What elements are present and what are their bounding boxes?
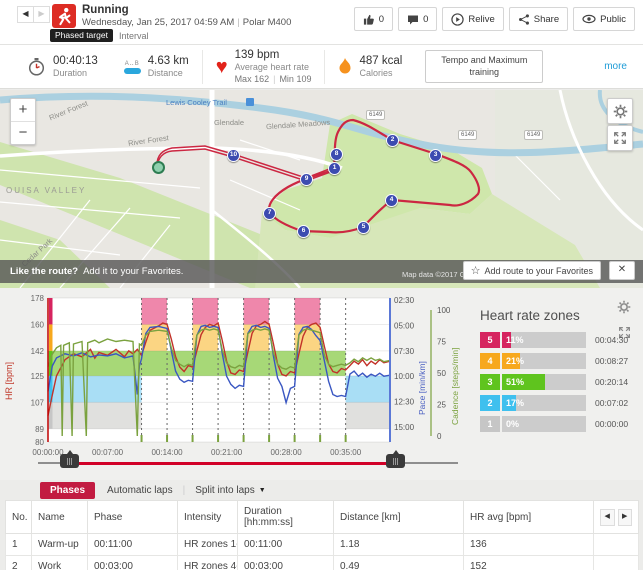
svg-text:00:14:00: 00:14:00: [151, 448, 183, 457]
svg-text:107: 107: [31, 398, 45, 407]
thumbs-up-icon: [363, 13, 375, 26]
map-settings-button[interactable]: [607, 98, 633, 124]
session-header: ◀ ▶ Running Wednesday, Jan 25, 2017 04:5…: [0, 0, 643, 45]
tab-divider: |: [183, 485, 186, 496]
table-cell: Work: [32, 556, 88, 570]
heart-icon: ♥: [216, 57, 228, 77]
map-fullscreen-button[interactable]: [607, 125, 633, 151]
hr-zone-row: 10%00:00:00: [480, 416, 628, 432]
table-header-cell[interactable]: Phase: [88, 501, 178, 534]
table-cell: 00:11:00: [238, 534, 334, 556]
route-phase-marker[interactable]: 3: [429, 149, 442, 162]
split-label: Split into laps: [195, 485, 254, 496]
hr-zone-bar-track: 0%: [502, 416, 586, 432]
table-cell: 00:03:00: [88, 556, 178, 570]
table-cell: 0.49: [334, 556, 464, 570]
banner-text: Add it to your Favorites.: [83, 266, 183, 277]
route-map[interactable]: OUISA VALLEYGlendaleGlendale MeadowsRive…: [0, 90, 643, 288]
sport-title: Running: [82, 4, 129, 16]
table-cell: HR zones 1-3: [178, 534, 238, 556]
table-header-cell[interactable]: Name: [32, 501, 88, 534]
target-chips: Phased target Interval: [50, 29, 148, 42]
route-phase-marker[interactable]: 2: [386, 134, 399, 147]
flame-icon: [338, 57, 352, 76]
hr-zone-bar-track: 17%: [502, 395, 586, 411]
svg-text:0: 0: [437, 432, 442, 441]
hr-zone-percent: 21%: [506, 353, 524, 369]
separator: |: [273, 74, 275, 84]
cadence-tick-labels: 0255075100: [437, 306, 451, 441]
hr-zone-number: 4: [480, 353, 500, 369]
runner-icon: [54, 6, 74, 26]
hr-zone-number: 3: [480, 374, 500, 390]
duration-value: 00:40:13: [53, 54, 98, 68]
laps-tabs: Phases Automatic laps | Split into laps▼: [40, 482, 266, 499]
chart-settings-button[interactable]: [617, 300, 631, 319]
tab-automatic-laps[interactable]: Automatic laps: [107, 485, 173, 496]
route-phase-marker[interactable]: 8: [330, 148, 343, 161]
hr-zone-number: 1: [480, 416, 500, 432]
training-benefit-button[interactable]: Tempo and Maximum training: [425, 50, 543, 83]
table-row[interactable]: 1Warm-up00:11:00HR zones 1-300:11:001.18…: [6, 534, 639, 556]
route-phase-marker[interactable]: 10: [227, 149, 240, 162]
svg-text:80: 80: [35, 438, 44, 447]
hr-zone-percent: 11%: [506, 332, 524, 348]
interval-label: Interval: [119, 31, 149, 41]
svg-text:160: 160: [31, 320, 45, 329]
hr-zone-row: 351%00:20:14: [480, 374, 628, 390]
summary-stats-bar: 00:40:13Duration A‥B 4.63 kmDistance ♥ 1…: [0, 45, 643, 89]
svg-text:15:00: 15:00: [394, 423, 415, 432]
public-label: Public: [600, 14, 626, 25]
table-next-page-button[interactable]: ▶: [618, 509, 633, 526]
svg-text:75: 75: [437, 338, 446, 347]
public-visibility-button[interactable]: Public: [573, 7, 635, 31]
transit-station-icon: [246, 98, 254, 106]
add-route-to-favorites-button[interactable]: ☆ Add route to your Favorites: [463, 261, 601, 280]
map-zoom-control: + −: [10, 98, 36, 145]
distance-stat: A‥B 4.63 kmDistance: [111, 50, 203, 84]
hr-zone-time: 00:04:30: [595, 335, 628, 345]
table-prev-page-button[interactable]: ◀: [600, 509, 615, 526]
hr-zone-bar-track: 11%: [502, 332, 586, 348]
stopwatch-icon: [27, 57, 46, 77]
duration-stat: 00:40:13Duration: [14, 50, 111, 84]
hr-min-max: Max 162|Min 109: [235, 74, 312, 85]
header-actions: 0 0 Relive Share Public: [354, 7, 635, 31]
hr-zone-row: 511%00:04:30: [480, 332, 628, 348]
duration-label: Duration: [53, 68, 98, 79]
route-phase-marker[interactable]: 6: [297, 225, 310, 238]
play-circle-icon: [451, 13, 464, 26]
svg-text:125: 125: [31, 372, 45, 381]
device-name: Polar M400: [243, 17, 292, 28]
svg-text:00:35:00: 00:35:00: [330, 448, 362, 457]
svg-text:100: 100: [437, 306, 451, 315]
phases-table: No.NamePhaseIntensityDuration [hh:mm:ss]…: [5, 500, 639, 570]
calories-stat: 487 kcalCalories: [325, 50, 415, 84]
polar-flow-training-page: ◀ ▶ Running Wednesday, Jan 25, 2017 04:5…: [0, 0, 643, 570]
running-sport-icon: [52, 4, 76, 28]
table-cell: 1.18: [334, 534, 464, 556]
hr-zone-rows: 511%00:04:30421%00:08:27351%00:20:14217%…: [480, 332, 628, 437]
hr-zone-row: 421%00:08:27: [480, 353, 628, 369]
svg-text:89: 89: [35, 425, 44, 434]
relive-button[interactable]: Relive: [442, 7, 503, 31]
table-header-cell[interactable]: Duration [hh:mm:ss]: [238, 501, 334, 534]
tab-phases[interactable]: Phases: [40, 482, 95, 499]
hr-zone-time: 00:20:14: [595, 377, 628, 387]
gear-icon: [617, 300, 631, 314]
share-label: Share: [534, 14, 559, 25]
svg-text:05:00: 05:00: [394, 321, 415, 330]
pace-axis-title: Pace [min/km]: [417, 361, 427, 415]
training-chart[interactable]: 808910712514216017800:00:0000:07:0000:14…: [0, 290, 470, 460]
map-canvas: [0, 90, 643, 288]
training-curves-section: 808910712514216017800:00:0000:07:0000:14…: [0, 288, 643, 480]
session-datetime: Wednesday, Jan 25, 2017 04:59 AM|Polar M…: [82, 17, 291, 28]
calories-label: Calories: [359, 68, 402, 79]
table-row[interactable]: 2Work00:03:00HR zones 4-500:03:000.49152: [6, 556, 639, 570]
hr-axis-title: HR [bpm]: [4, 362, 14, 400]
hr-zone-number: 5: [480, 332, 500, 348]
zoom-in-button[interactable]: +: [11, 99, 35, 122]
svg-text:25: 25: [437, 401, 446, 410]
hr-zone-time: 00:00:00: [595, 419, 628, 429]
share-icon: [518, 13, 530, 26]
comment-button[interactable]: 0: [398, 7, 437, 31]
more-link[interactable]: more: [604, 61, 627, 72]
range-slider-left-handle[interactable]: [60, 454, 79, 468]
gear-icon: [613, 104, 628, 119]
calories-value: 487 kcal: [359, 54, 402, 68]
hr-tick-labels: 8089107125142160178: [31, 294, 45, 447]
hr-zone-number: 2: [480, 395, 500, 411]
distance-value: 4.63 km: [148, 54, 189, 68]
svg-text:07:30: 07:30: [394, 347, 415, 356]
table-header-cell[interactable]: HR avg [bpm]: [464, 501, 594, 534]
route-phase-marker[interactable]: 1: [328, 162, 341, 175]
distance-a-b-icon: A‥B: [124, 60, 141, 74]
relive-label: Relive: [468, 14, 494, 25]
banner-question: Like the route?: [10, 266, 78, 277]
time-tick-labels: 00:00:0000:07:0000:14:0000:21:0000:28:00…: [32, 448, 361, 457]
route-phase-marker[interactable]: 9: [300, 173, 313, 186]
table-header-cell[interactable]: Distance [km]: [334, 501, 464, 534]
eye-icon: [582, 14, 596, 24]
table-cell: 136: [464, 534, 594, 556]
hr-zone-bar-track: 51%: [502, 374, 586, 390]
comment-icon: [407, 14, 419, 25]
datetime-text: Wednesday, Jan 25, 2017 04:59 AM: [82, 17, 234, 28]
zoom-out-button[interactable]: −: [11, 122, 35, 144]
table-cell: [594, 534, 639, 556]
hr-zones-title: Heart rate zones: [480, 308, 580, 323]
table-cell: HR zones 4-5: [178, 556, 238, 570]
phased-target-badge: Phased target: [50, 29, 113, 42]
svg-text:10:00: 10:00: [394, 372, 415, 381]
pace-tick-labels: 02:3005:0007:3010:0012:3015:00: [394, 296, 415, 432]
cadence-axis-title: Cadence [steps/min]: [450, 348, 460, 425]
hr-max: Max 162: [235, 74, 270, 84]
route-phase-marker[interactable]: 4: [385, 194, 398, 207]
table-pager: ◀▶: [594, 501, 639, 534]
star-icon: ☆: [471, 264, 481, 277]
table-cell: 2: [6, 556, 32, 570]
svg-text:142: 142: [31, 347, 45, 356]
like-button[interactable]: 0: [354, 7, 393, 31]
separator: |: [237, 17, 239, 28]
next-session-button[interactable]: ▶: [33, 6, 50, 23]
distance-label: Distance: [148, 68, 189, 79]
svg-text:02:30: 02:30: [394, 296, 415, 305]
hr-zone-bar-track: 21%: [502, 353, 586, 369]
hr-zone-percent: 17%: [506, 395, 524, 411]
route-phase-marker[interactable]: 5: [357, 221, 370, 234]
like-count: 0: [379, 14, 384, 25]
svg-text:50: 50: [437, 369, 446, 378]
table-cell: Warm-up: [32, 534, 88, 556]
avg-hr-label: Average heart rate: [235, 62, 312, 73]
svg-text:12:30: 12:30: [394, 398, 415, 407]
share-button[interactable]: Share: [509, 7, 568, 31]
heart-rate-stat: ♥ 139 bpm Average heart rate Max 162|Min…: [203, 50, 326, 84]
range-slider-right-handle[interactable]: [386, 454, 405, 468]
table-cell: 00:11:00: [88, 534, 178, 556]
route-phase-marker[interactable]: 7: [263, 207, 276, 220]
prev-session-button[interactable]: ◀: [17, 6, 34, 23]
hr-min: Min 109: [279, 74, 311, 84]
table-header-cell[interactable]: Intensity: [178, 501, 238, 534]
table-header-cell[interactable]: No.: [6, 501, 32, 534]
hr-zone-percent: 0%: [506, 416, 519, 432]
banner-close-button[interactable]: ✕: [609, 261, 635, 280]
heart-rate-zones-panel: Heart rate zones 511%00:04:30421%00:08:2…: [470, 288, 643, 480]
fullscreen-icon: [613, 131, 627, 145]
table-cell: 1: [6, 534, 32, 556]
svg-text:178: 178: [31, 294, 45, 303]
table-header-row: No.NamePhaseIntensityDuration [hh:mm:ss]…: [6, 501, 639, 534]
hr-zone-row: 217%00:07:02: [480, 395, 628, 411]
svg-text:00:21:00: 00:21:00: [211, 448, 243, 457]
chevron-down-icon: ▼: [259, 487, 266, 494]
hr-zone-time: 00:07:02: [595, 398, 628, 408]
hr-zone-time: 00:08:27: [595, 356, 628, 366]
table-cell: 152: [464, 556, 594, 570]
route-start-marker[interactable]: [152, 161, 165, 174]
comment-count: 0: [423, 14, 428, 25]
tab-split-into-laps[interactable]: Split into laps▼: [195, 485, 265, 496]
hr-zone-percent: 51%: [506, 374, 524, 390]
svg-text:00:07:00: 00:07:00: [92, 448, 124, 457]
svg-text:00:28:00: 00:28:00: [271, 448, 303, 457]
time-range-selected: [70, 462, 395, 465]
favorite-button-label: Add route to your Favorites: [484, 266, 593, 276]
table-cell: [594, 556, 639, 570]
table-cell: 00:03:00: [238, 556, 334, 570]
avg-hr-value: 139 bpm: [235, 48, 312, 62]
